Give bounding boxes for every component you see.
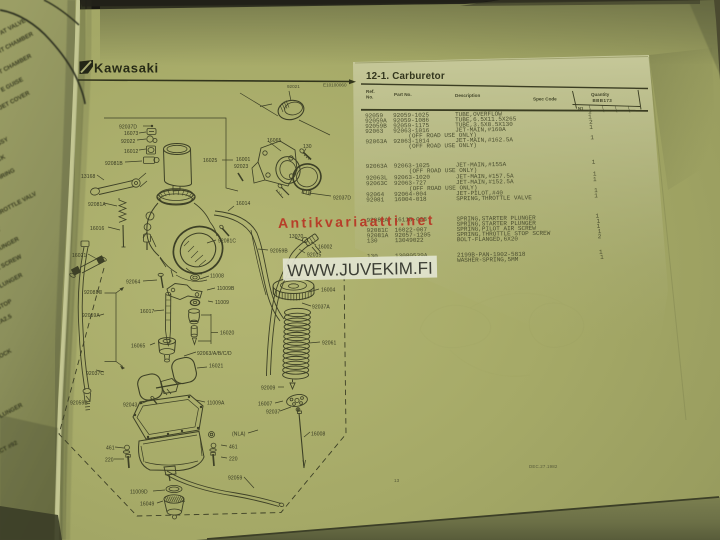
svg-text:Description: Description — [455, 93, 480, 98]
svg-text:92022: 92022 — [121, 139, 136, 145]
svg-text:220: 220 — [105, 458, 114, 464]
svg-text:2: 2 — [598, 233, 602, 240]
svg-text:BBB173: BBB173 — [593, 98, 613, 103]
svg-text:13070: 13070 — [289, 234, 304, 240]
svg-text:92037D: 92037D — [333, 196, 351, 202]
svg-text:12-1. Carburetor: 12-1. Carburetor — [366, 71, 445, 82]
svg-text:92081: 92081 — [366, 196, 384, 203]
svg-text:WASHER-SPRING,5MM: WASHER-SPRING,5MM — [457, 256, 519, 264]
svg-text:16020: 16020 — [220, 331, 235, 337]
svg-text:16016: 16016 — [90, 226, 105, 232]
svg-text:16007: 16007 — [258, 402, 273, 408]
svg-text:130: 130 — [303, 144, 312, 150]
svg-text:E10100060: E10100060 — [323, 83, 347, 88]
svg-text:1: 1 — [600, 254, 604, 261]
svg-text:Antikvariaatti.net: Antikvariaatti.net — [278, 212, 435, 231]
svg-text:92037D: 92037D — [119, 125, 137, 131]
svg-text:92015: 92015 — [307, 253, 322, 259]
svg-text:220: 220 — [229, 457, 238, 463]
svg-text:16002: 16002 — [318, 245, 333, 251]
svg-text:92043: 92043 — [123, 403, 138, 409]
svg-text:BOLT-FLANGED,6X20: BOLT-FLANGED,6X20 — [457, 235, 519, 243]
svg-text:16021: 16021 — [72, 253, 87, 259]
svg-text:92063: 92063 — [365, 128, 383, 135]
svg-text:1: 1 — [594, 192, 598, 199]
svg-text:(OFF ROAD USE ONLY): (OFF ROAD USE ONLY) — [408, 142, 477, 150]
svg-text:92081C: 92081C — [84, 290, 102, 296]
svg-text:16073: 16073 — [124, 131, 139, 137]
svg-text:92059B: 92059B — [70, 401, 88, 407]
svg-text:16012: 16012 — [124, 149, 139, 155]
svg-text:16008: 16008 — [311, 432, 326, 438]
svg-text:(NLA): (NLA) — [232, 432, 246, 438]
svg-text:16025: 16025 — [203, 158, 218, 164]
svg-text:461: 461 — [229, 445, 238, 451]
svg-text:16014: 16014 — [236, 201, 251, 207]
svg-text:DEC.27.1982: DEC.27.1982 — [529, 464, 558, 469]
svg-text:92063/A/B/C/D: 92063/A/B/C/D — [197, 351, 232, 357]
svg-text:Quantity: Quantity — [591, 92, 610, 97]
svg-text:16017: 16017 — [140, 309, 155, 315]
svg-text:11009A: 11009A — [207, 401, 225, 407]
svg-text:461: 461 — [106, 446, 115, 452]
svg-text:No.: No. — [366, 95, 373, 100]
svg-text:92063A: 92063A — [365, 138, 387, 145]
svg-text:Kawasaki: Kawasaki — [94, 61, 159, 76]
svg-text:16021: 16021 — [209, 364, 224, 370]
svg-text:1: 1 — [590, 134, 594, 141]
svg-text:13: 13 — [394, 478, 400, 483]
svg-text:13049022: 13049022 — [395, 237, 424, 244]
svg-text:16065: 16065 — [131, 344, 146, 350]
svg-text:92081A: 92081A — [88, 202, 106, 208]
svg-text:92037A: 92037A — [312, 305, 330, 311]
svg-text:92059: 92059 — [228, 476, 243, 482]
svg-text:16049: 16049 — [140, 502, 155, 508]
svg-text:11009: 11009 — [215, 300, 229, 306]
svg-text:11008: 11008 — [210, 274, 224, 280]
svg-text:92037: 92037 — [266, 410, 281, 416]
svg-text:92063A: 92063A — [366, 163, 388, 170]
svg-text:92061: 92061 — [322, 341, 337, 347]
svg-text:1: 1 — [592, 159, 596, 166]
svg-text:16004-018: 16004-018 — [394, 196, 427, 203]
svg-text:WWW.JUVEKIM.FI: WWW.JUVEKIM.FI — [287, 259, 433, 281]
svg-text:92037C: 92037C — [86, 371, 104, 377]
svg-text:11009B: 11009B — [217, 286, 235, 292]
svg-text:92009: 92009 — [261, 386, 276, 392]
svg-text:92023: 92023 — [234, 164, 249, 170]
svg-text:Part No.: Part No. — [394, 92, 412, 97]
svg-text:130: 130 — [367, 237, 378, 244]
svg-text:Spec Code: Spec Code — [533, 97, 557, 102]
svg-text:Ref.: Ref. — [366, 89, 375, 94]
svg-text:92081B: 92081B — [105, 161, 123, 167]
svg-text:92064: 92064 — [126, 280, 141, 286]
svg-text:SPRING,THROTTLE VALVE: SPRING,THROTTLE VALVE — [456, 194, 532, 202]
svg-text:16001: 16001 — [236, 157, 251, 163]
svg-text:16004: 16004 — [321, 288, 336, 294]
svg-text:1: 1 — [589, 124, 593, 131]
svg-text:92059B: 92059B — [270, 249, 288, 255]
svg-text:92063C: 92063C — [366, 180, 388, 187]
svg-text:N1: N1 — [578, 106, 584, 111]
svg-text:11009D: 11009D — [130, 490, 148, 496]
svg-text:92021: 92021 — [287, 84, 300, 89]
svg-text:1: 1 — [593, 176, 597, 183]
svg-text:13168: 13168 — [81, 174, 96, 180]
